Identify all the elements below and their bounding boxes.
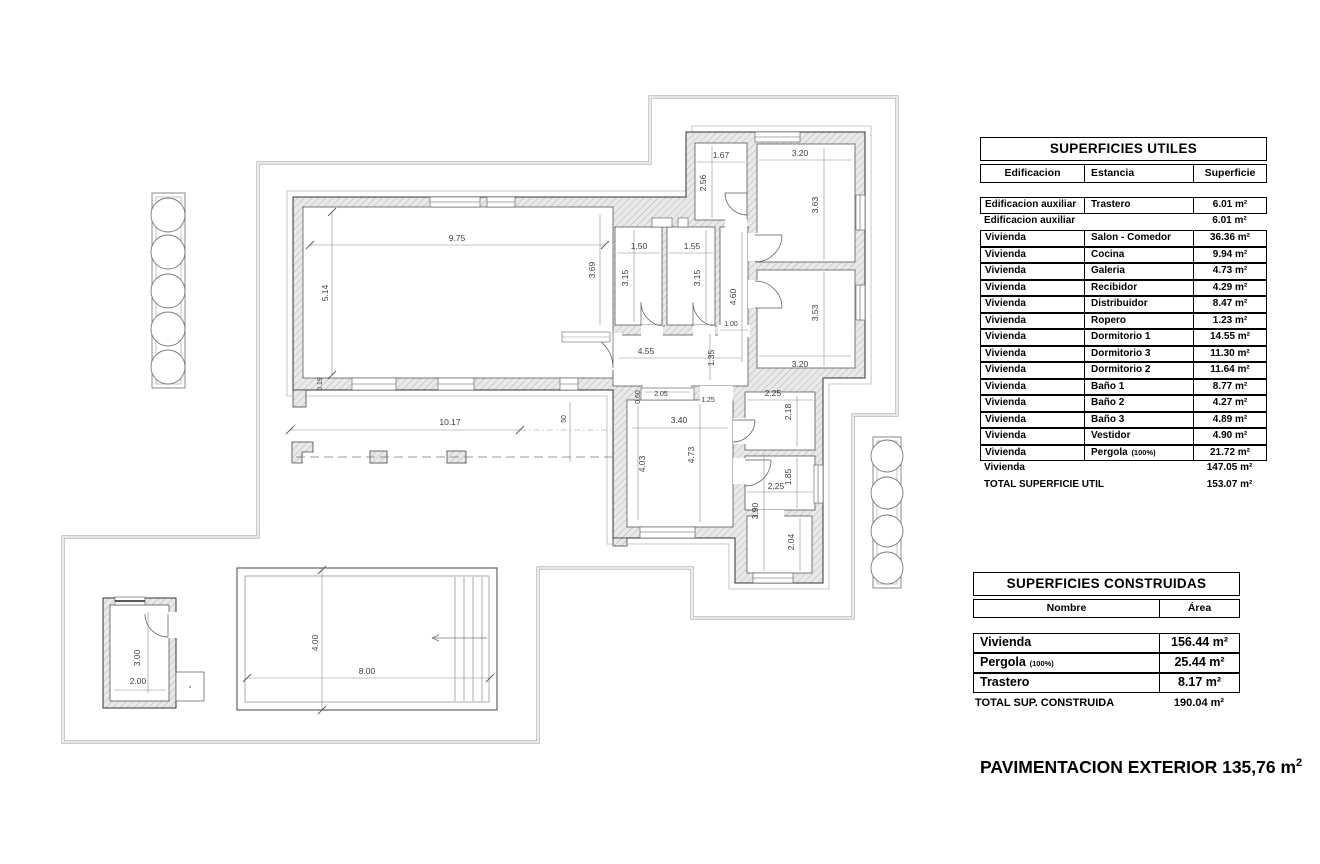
pavimentacion-exterior-note: PAVIMENTACION EXTERIOR 135,76 m2 xyxy=(980,757,1280,778)
dimension-label: 1.35 xyxy=(706,349,716,366)
table-row: ViviendaSalon - Comedor36.36 m² xyxy=(980,230,1267,247)
dimension-label: 3.00 xyxy=(132,649,142,666)
total-label: TOTAL SUP. CONSTRUIDA xyxy=(973,697,1158,709)
tree-icon xyxy=(151,350,185,384)
dimension-label: 9.75 xyxy=(449,233,466,243)
cell-superficie: 4.29 m² xyxy=(1193,281,1266,296)
cell-edificacion: TOTAL SUPERFICIE UTIL xyxy=(980,478,1083,495)
dimension-label: 1.00 xyxy=(724,321,738,328)
planter-right xyxy=(871,437,903,588)
table-rows: Vivienda156.44 m²Pergola (100%)25.44 m²T… xyxy=(973,633,1240,693)
dimension-label: 4.73 xyxy=(686,446,696,463)
cell-superficie: 11.64 m² xyxy=(1193,363,1266,378)
dimension-label: 2.56 xyxy=(698,174,708,191)
table-title: SUPERFICIES UTILES xyxy=(980,137,1267,161)
cell-edificacion: Vivienda xyxy=(981,413,1084,428)
trastero-building xyxy=(103,597,204,708)
dimension-label: 1.25 xyxy=(701,397,715,404)
tree-icon xyxy=(151,235,185,269)
column-header-nombre: Nombre xyxy=(974,600,1159,617)
table-row: ViviendaVestidor4.90 m² xyxy=(980,428,1267,445)
pavimentacion-text: PAVIMENTACION EXTERIOR 135,76 m xyxy=(980,757,1296,777)
table-row: Edificacion auxiliar6.01 m² xyxy=(980,214,1267,231)
cell-estancia: Trastero xyxy=(1084,198,1193,213)
cell-estancia xyxy=(1083,214,1192,231)
dimension-label: 0.19 xyxy=(317,377,324,391)
table-row: Pergola (100%)25.44 m² xyxy=(973,653,1240,673)
dimension-label: 1.50 xyxy=(631,241,648,251)
cell-superficie: 8.77 m² xyxy=(1193,380,1266,395)
cell-estancia: Baño 2 xyxy=(1084,396,1193,411)
cell-edificacion: Vivienda xyxy=(981,314,1084,329)
cell-superficie: 36.36 m² xyxy=(1193,231,1266,246)
table-row: ViviendaBaño 18.77 m² xyxy=(980,379,1267,396)
table-row: ViviendaDistribuidor8.47 m² xyxy=(980,296,1267,313)
dimension-label: 8.00 xyxy=(359,666,376,676)
room-vestidor xyxy=(747,516,812,573)
cell-superficie: 14.55 m² xyxy=(1193,330,1266,345)
column-header-estancia: Estancia xyxy=(1084,165,1193,182)
table-row: ViviendaCocina9.94 m² xyxy=(980,247,1267,264)
cell-estancia: Vestidor xyxy=(1084,429,1193,444)
cell-edificacion: Vivienda xyxy=(980,461,1083,478)
dimension-label: 4.60 xyxy=(728,288,738,305)
column-header-area: Área xyxy=(1159,600,1239,617)
dimension-label: 3.20 xyxy=(792,359,809,369)
cell-estancia: Recibidor xyxy=(1084,281,1193,296)
cell-estancia xyxy=(1083,478,1192,495)
cell-superficie: 1.23 m² xyxy=(1193,314,1266,329)
cell-edificacion: Vivienda xyxy=(981,248,1084,263)
table-row: Trastero8.17 m² xyxy=(973,673,1240,693)
cell-edificacion: Vivienda xyxy=(981,330,1084,345)
cell-estancia: Dormitorio 2 xyxy=(1084,363,1193,378)
table-row: ViviendaPergola (100%)21.72 m² xyxy=(980,445,1267,462)
cell-edificacion: Vivienda xyxy=(981,347,1084,362)
tree-icon xyxy=(871,440,903,472)
cell-estancia: Baño 1 xyxy=(1084,380,1193,395)
cell-estancia: Salon - Comedor xyxy=(1084,231,1193,246)
dimension-label: 10.17 xyxy=(439,417,461,427)
cell-superficie: 4.73 m² xyxy=(1193,264,1266,279)
room-dormitorio-2 xyxy=(757,270,855,368)
cell-superficie: 4.27 m² xyxy=(1193,396,1266,411)
cell-area: 8.17 m² xyxy=(1159,674,1239,692)
cell-superficie: 147.05 m² xyxy=(1192,461,1267,478)
table-row: ViviendaDormitorio 311.30 m² xyxy=(980,346,1267,363)
dimension-label: 0.60 xyxy=(635,390,642,404)
dimension-label: 1.67 xyxy=(713,150,730,160)
dimension-label: 3.53 xyxy=(810,304,820,321)
table-row: Edificacion auxiliarTrastero6.01 m² xyxy=(980,197,1267,214)
dimension-label: 3.63 xyxy=(810,196,820,213)
floor-plan: 9.755.140.193.691.503.151.553.151.672.56… xyxy=(0,0,960,859)
tree-icon xyxy=(871,477,903,509)
table-header: Edificacion Estancia Superficie xyxy=(980,164,1267,183)
cell-edificacion: Vivienda xyxy=(981,429,1084,444)
cell-nombre: Trastero xyxy=(974,674,1159,692)
cell-estancia: Distribuidor xyxy=(1084,297,1193,312)
total-value: 190.04 m² xyxy=(1158,697,1240,709)
table-row: ViviendaDormitorio 211.64 m² xyxy=(980,362,1267,379)
cell-nombre: Pergola (100%) xyxy=(974,654,1159,672)
cell-edificacion: Vivienda xyxy=(981,264,1084,279)
cell-note: (100%) xyxy=(1128,448,1156,457)
cell-estancia: Cocina xyxy=(1084,248,1193,263)
dimension-label: 4.03 xyxy=(637,455,647,472)
table-row: ViviendaBaño 24.27 m² xyxy=(980,395,1267,412)
planter-left xyxy=(151,193,185,388)
cell-estancia: Baño 3 xyxy=(1084,413,1193,428)
cell-note: (100%) xyxy=(1026,659,1054,668)
table-row: ViviendaRecibidor4.29 m² xyxy=(980,280,1267,297)
dimension-label: 4.00 xyxy=(310,634,320,651)
cell-estancia: Dormitorio 3 xyxy=(1084,347,1193,362)
cell-superficie: 6.01 m² xyxy=(1193,198,1266,213)
dimension-label: 3.90 xyxy=(750,502,760,519)
pavimentacion-sup: 2 xyxy=(1296,757,1302,769)
dimension-label: 3.15 xyxy=(692,269,702,286)
table-row: ViviendaBaño 34.89 m² xyxy=(980,412,1267,429)
dimension-label: 4.55 xyxy=(638,346,655,356)
cell-area: 156.44 m² xyxy=(1159,634,1239,652)
tree-icon xyxy=(871,515,903,547)
cell-nombre: Vivienda xyxy=(974,634,1159,652)
cell-edificacion: Edificacion auxiliar xyxy=(980,214,1083,231)
table-rows: Edificacion auxiliarTrastero6.01 m²Edifi… xyxy=(980,197,1267,494)
dimension-label: 5.14 xyxy=(320,284,330,301)
table-row: Vivienda147.05 m² xyxy=(980,461,1267,478)
cell-edificacion: Edificacion auxiliar xyxy=(981,198,1084,213)
cell-superficie: 6.01 m² xyxy=(1192,214,1267,231)
dimension-label: 2.05 xyxy=(654,391,668,398)
dimension-label: 3.69 xyxy=(587,261,597,278)
cell-edificacion: Vivienda xyxy=(981,281,1084,296)
table-title: SUPERFICIES CONSTRUIDAS xyxy=(973,572,1240,596)
cell-edificacion: Vivienda xyxy=(981,363,1084,378)
room-dormitorio-1 xyxy=(757,144,855,262)
cell-estancia: Ropero xyxy=(1084,314,1193,329)
dimension-label: 1.85 xyxy=(783,468,793,485)
dimension-label: 3.20 xyxy=(792,148,809,158)
cell-superficie: 8.47 m² xyxy=(1193,297,1266,312)
pool xyxy=(237,568,497,710)
dimension-label: 2.04 xyxy=(786,533,796,550)
cell-edificacion: Vivienda xyxy=(981,297,1084,312)
dimension-label: 2.00 xyxy=(130,676,147,686)
cell-edificacion: Vivienda xyxy=(981,446,1084,461)
dimension-label: 3.15 xyxy=(620,269,630,286)
table-total-row: TOTAL SUP. CONSTRUIDA 190.04 m² xyxy=(973,697,1240,709)
cell-edificacion: Vivienda xyxy=(981,396,1084,411)
table-row: ViviendaRopero1.23 m² xyxy=(980,313,1267,330)
table-row: ViviendaGaleria4.73 m² xyxy=(980,263,1267,280)
pergola-columns xyxy=(292,390,627,546)
house xyxy=(287,126,871,589)
cell-superficie: 21.72 m² xyxy=(1193,446,1266,461)
table-header: Nombre Área xyxy=(973,599,1240,618)
table-superficies-utiles: SUPERFICIES UTILES Edificacion Estancia … xyxy=(980,137,1267,494)
cell-edificacion: Vivienda xyxy=(981,380,1084,395)
table-superficies-construidas: SUPERFICIES CONSTRUIDAS Nombre Área Vivi… xyxy=(973,572,1240,709)
column-header-edificacion: Edificacion xyxy=(981,165,1084,182)
dimension-label: 3.40 xyxy=(671,415,688,425)
cell-superficie: 4.89 m² xyxy=(1193,413,1266,428)
dimension-label: 1.55 xyxy=(684,241,701,251)
cell-superficie: 153.07 m² xyxy=(1192,478,1267,495)
table-row: Vivienda156.44 m² xyxy=(973,633,1240,653)
dimension-label: 2.25 xyxy=(765,388,782,398)
cell-edificacion: Vivienda xyxy=(981,231,1084,246)
cell-superficie: 9.94 m² xyxy=(1193,248,1266,263)
table-row: ViviendaDormitorio 114.55 m² xyxy=(980,329,1267,346)
dimension-label: 50 xyxy=(561,415,568,423)
room-bano-2 xyxy=(745,392,815,450)
cell-estancia: Galeria xyxy=(1084,264,1193,279)
tree-icon xyxy=(151,274,185,308)
column-header-superficie: Superficie xyxy=(1193,165,1266,182)
cell-superficie: 4.90 m² xyxy=(1193,429,1266,444)
cell-area: 25.44 m² xyxy=(1159,654,1239,672)
table-row: TOTAL SUPERFICIE UTIL153.07 m² xyxy=(980,478,1267,495)
tree-icon xyxy=(151,312,185,346)
room-pasillo xyxy=(720,227,748,335)
cell-estancia: Pergola (100%) xyxy=(1084,446,1193,461)
cell-estancia: Dormitorio 1 xyxy=(1084,330,1193,345)
cell-superficie: 11.30 m² xyxy=(1193,347,1266,362)
tree-icon xyxy=(151,198,185,232)
tree-icon xyxy=(871,552,903,584)
cell-estancia xyxy=(1083,461,1192,478)
dimension-label: 2.18 xyxy=(783,403,793,420)
